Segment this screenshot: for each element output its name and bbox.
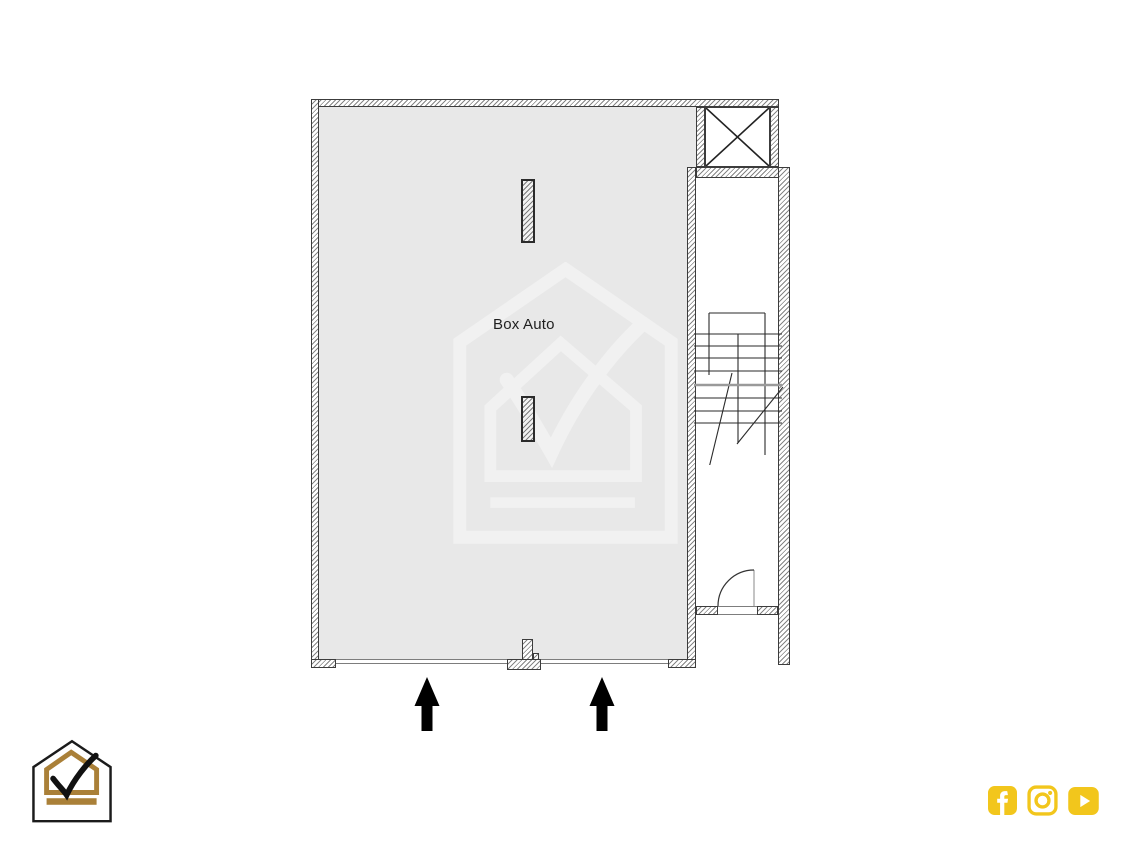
pier-step — [533, 653, 539, 660]
wall-bottom-center-pier — [507, 659, 541, 670]
room-label: Box Auto — [493, 316, 555, 333]
house-checkmark-logo — [31, 739, 113, 823]
wall-stairwell-top — [696, 167, 790, 178]
staircase — [687, 305, 790, 465]
wall-top — [311, 99, 779, 107]
wall-bottom-left-stub — [311, 659, 336, 668]
wall-bottom-right-stub — [668, 659, 696, 668]
floor-plan-page: Box Auto — [0, 0, 1133, 850]
social-links — [988, 785, 1099, 816]
elevator-shaft — [705, 107, 770, 167]
garage-door-opening — [336, 659, 507, 664]
wall-room-right-upper — [696, 107, 705, 167]
wall-left — [311, 99, 319, 668]
pillar — [521, 396, 535, 442]
door-swing — [687, 560, 790, 610]
wall-elevator-right — [770, 107, 779, 167]
house-checkmark-watermark — [448, 262, 683, 547]
facebook-icon[interactable] — [988, 786, 1017, 815]
pillar — [521, 179, 535, 243]
entrance-arrow-left — [414, 677, 440, 731]
pier-stem — [522, 639, 533, 660]
entrance-arrow-right — [589, 677, 615, 731]
instagram-icon[interactable] — [1027, 785, 1058, 816]
garage-door-opening — [541, 659, 668, 664]
youtube-icon[interactable] — [1068, 787, 1099, 815]
elevator-cross-icon — [706, 108, 769, 166]
